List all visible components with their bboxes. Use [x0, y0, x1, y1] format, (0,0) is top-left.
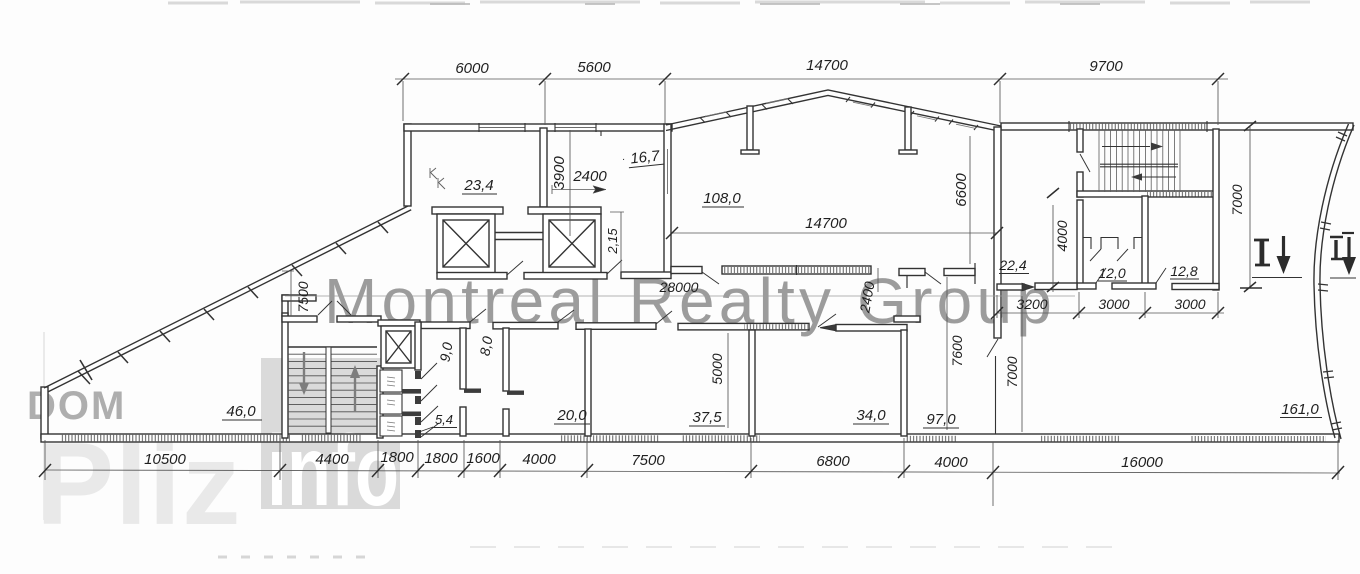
svg-text:108,0: 108,0	[703, 190, 741, 207]
svg-text:5600: 5600	[577, 59, 611, 76]
svg-text:5,4: 5,4	[435, 412, 453, 427]
svg-text:14700: 14700	[806, 57, 848, 74]
svg-text:7000: 7000	[1229, 184, 1245, 215]
svg-text:8,0: 8,0	[476, 335, 495, 357]
svg-text:16000: 16000	[1121, 454, 1163, 471]
svg-text:12,0: 12,0	[1098, 265, 1125, 281]
svg-text:7500: 7500	[631, 452, 665, 469]
svg-text:6800: 6800	[816, 453, 850, 470]
svg-text:12,8: 12,8	[1170, 263, 1197, 279]
svg-text:4000: 4000	[522, 451, 556, 468]
svg-text:28000: 28000	[659, 279, 699, 295]
svg-text:97,0: 97,0	[926, 411, 956, 428]
svg-text:9,0: 9,0	[436, 341, 455, 363]
svg-text:22,4: 22,4	[998, 257, 1026, 273]
svg-text:3000: 3000	[1174, 296, 1205, 312]
svg-text:161,0: 161,0	[1281, 401, 1319, 418]
svg-text:.: .	[623, 152, 626, 163]
svg-text:5000: 5000	[709, 353, 725, 384]
svg-text:3000: 3000	[1098, 296, 1129, 312]
svg-text:6600: 6600	[953, 173, 970, 207]
svg-text:1800: 1800	[380, 449, 414, 466]
svg-text:34,0: 34,0	[856, 407, 886, 424]
svg-text:4000: 4000	[1054, 220, 1070, 251]
svg-text:4400: 4400	[315, 451, 349, 468]
svg-text:3200: 3200	[1016, 296, 1047, 312]
svg-text:2400: 2400	[856, 280, 877, 315]
svg-text:1600: 1600	[466, 450, 500, 467]
svg-text:3900: 3900	[551, 156, 568, 190]
svg-text:2,15: 2,15	[605, 228, 620, 255]
svg-text:1800: 1800	[424, 450, 458, 467]
svg-text:7500: 7500	[295, 281, 311, 312]
svg-text:4000: 4000	[934, 454, 968, 471]
svg-text:6000: 6000	[455, 60, 489, 77]
svg-text:46,0: 46,0	[226, 403, 256, 420]
svg-text:14700: 14700	[805, 215, 847, 232]
svg-text:10500: 10500	[144, 451, 186, 468]
svg-text:9700: 9700	[1089, 58, 1123, 75]
svg-text:23,4: 23,4	[463, 177, 493, 194]
svg-text:2400: 2400	[572, 168, 607, 185]
svg-text:20,0: 20,0	[556, 407, 587, 424]
svg-text:7000: 7000	[1004, 356, 1020, 387]
svg-text:7600: 7600	[949, 335, 965, 366]
svg-text:37,5: 37,5	[692, 409, 722, 426]
